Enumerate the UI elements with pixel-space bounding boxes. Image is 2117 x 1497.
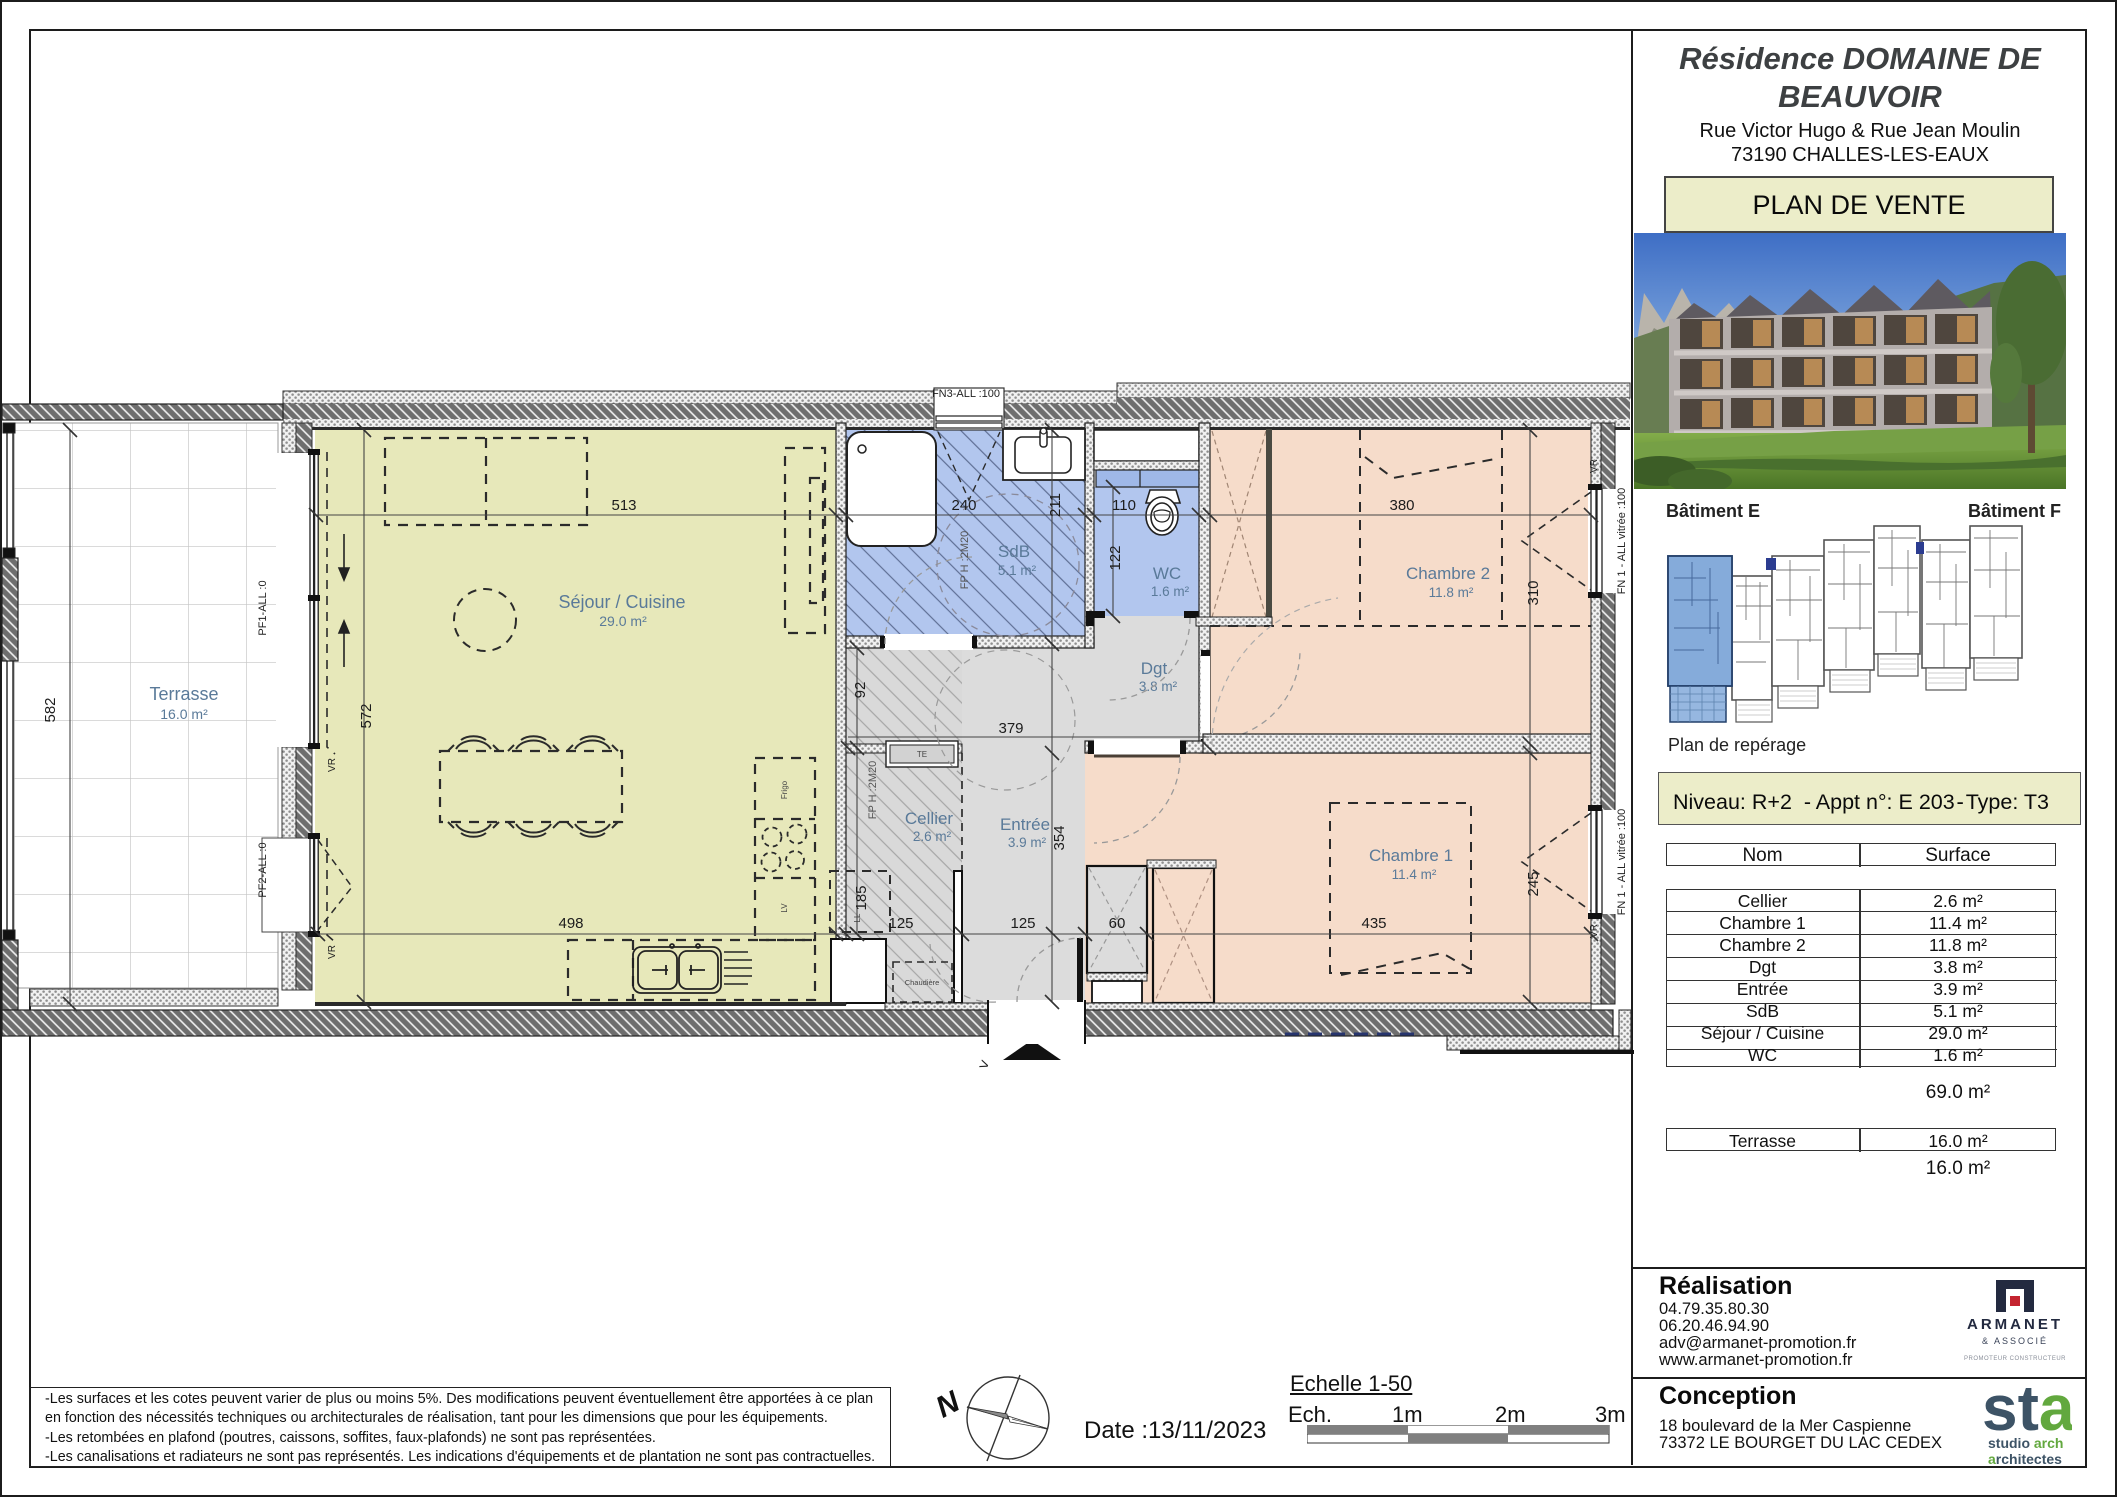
svg-text:11.4 m²: 11.4 m² (1392, 867, 1437, 882)
svg-text:Frigo: Frigo (780, 780, 789, 799)
svg-text:SdB: SdB (998, 542, 1030, 561)
svg-text:1.6 m²: 1.6 m² (1151, 584, 1190, 599)
svg-text:VR: VR (1589, 459, 1600, 473)
svg-text:3.9 m²: 3.9 m² (1008, 835, 1047, 850)
svg-text:380: 380 (1389, 497, 1414, 514)
svg-text:11.8 m²: 11.8 m² (1429, 585, 1474, 600)
svg-text:498: 498 (558, 915, 583, 932)
svg-text:60: 60 (1109, 915, 1126, 932)
svg-text:Entrée: Entrée (1000, 815, 1050, 834)
svg-text:513: 513 (611, 497, 636, 514)
svg-text:16.0 m²: 16.0 m² (160, 706, 208, 722)
svg-text:FP H :2M20: FP H :2M20 (959, 531, 971, 590)
svg-text:29.0 m²: 29.0 m² (599, 613, 647, 629)
svg-text:LV: LV (780, 903, 789, 913)
svg-text:LL: LL (853, 913, 862, 922)
svg-text:WC: WC (1153, 564, 1181, 583)
svg-text:TE: TE (917, 750, 927, 759)
svg-text:435: 435 (1361, 915, 1386, 932)
svg-text:2.6 m²: 2.6 m² (913, 829, 952, 844)
svg-text:FP H :2M20: FP H :2M20 (867, 761, 879, 820)
svg-text:125: 125 (1010, 915, 1035, 932)
svg-text:310: 310 (1525, 580, 1542, 605)
svg-text:FN 1 - ALL vitrée :100: FN 1 - ALL vitrée :100 (1616, 488, 1628, 595)
svg-text:FN3-ALL :100: FN3-ALL :100 (932, 388, 1000, 400)
svg-text:Cellier: Cellier (905, 809, 954, 828)
svg-text:92: 92 (852, 682, 869, 699)
svg-text:>: > (977, 1056, 992, 1075)
svg-text:Chaudière: Chaudière (905, 978, 940, 987)
svg-text:PF1-ALL :0: PF1-ALL :0 (257, 580, 269, 635)
svg-text:122: 122 (1107, 545, 1124, 570)
svg-text:240: 240 (951, 497, 976, 514)
svg-text:Chambre 1: Chambre 1 (1369, 846, 1453, 865)
svg-text:Terrasse: Terrasse (149, 684, 218, 704)
svg-text:Dgt: Dgt (1141, 659, 1168, 678)
svg-text:VR: VR (327, 945, 338, 959)
svg-text:379: 379 (998, 720, 1023, 737)
svg-text:582: 582 (42, 697, 59, 722)
svg-text:Chambre 2: Chambre 2 (1406, 564, 1490, 583)
svg-text:VR: VR (1589, 924, 1600, 938)
svg-text:PF2-ALL :0: PF2-ALL :0 (257, 842, 269, 897)
svg-text:VR: VR (327, 758, 338, 772)
svg-text:125: 125 (888, 915, 913, 932)
svg-text:Séjour / Cuisine: Séjour / Cuisine (558, 592, 685, 612)
svg-text:211: 211 (1047, 493, 1064, 517)
svg-text:5.1 m²: 5.1 m² (998, 563, 1037, 578)
svg-text:110: 110 (1112, 497, 1136, 514)
svg-text:572: 572 (358, 703, 375, 728)
svg-text:185: 185 (853, 885, 870, 910)
svg-text:354: 354 (1051, 825, 1068, 850)
svg-text:FN 1 - ALL vitrée :100: FN 1 - ALL vitrée :100 (1616, 809, 1628, 916)
svg-text:245: 245 (1525, 871, 1542, 896)
